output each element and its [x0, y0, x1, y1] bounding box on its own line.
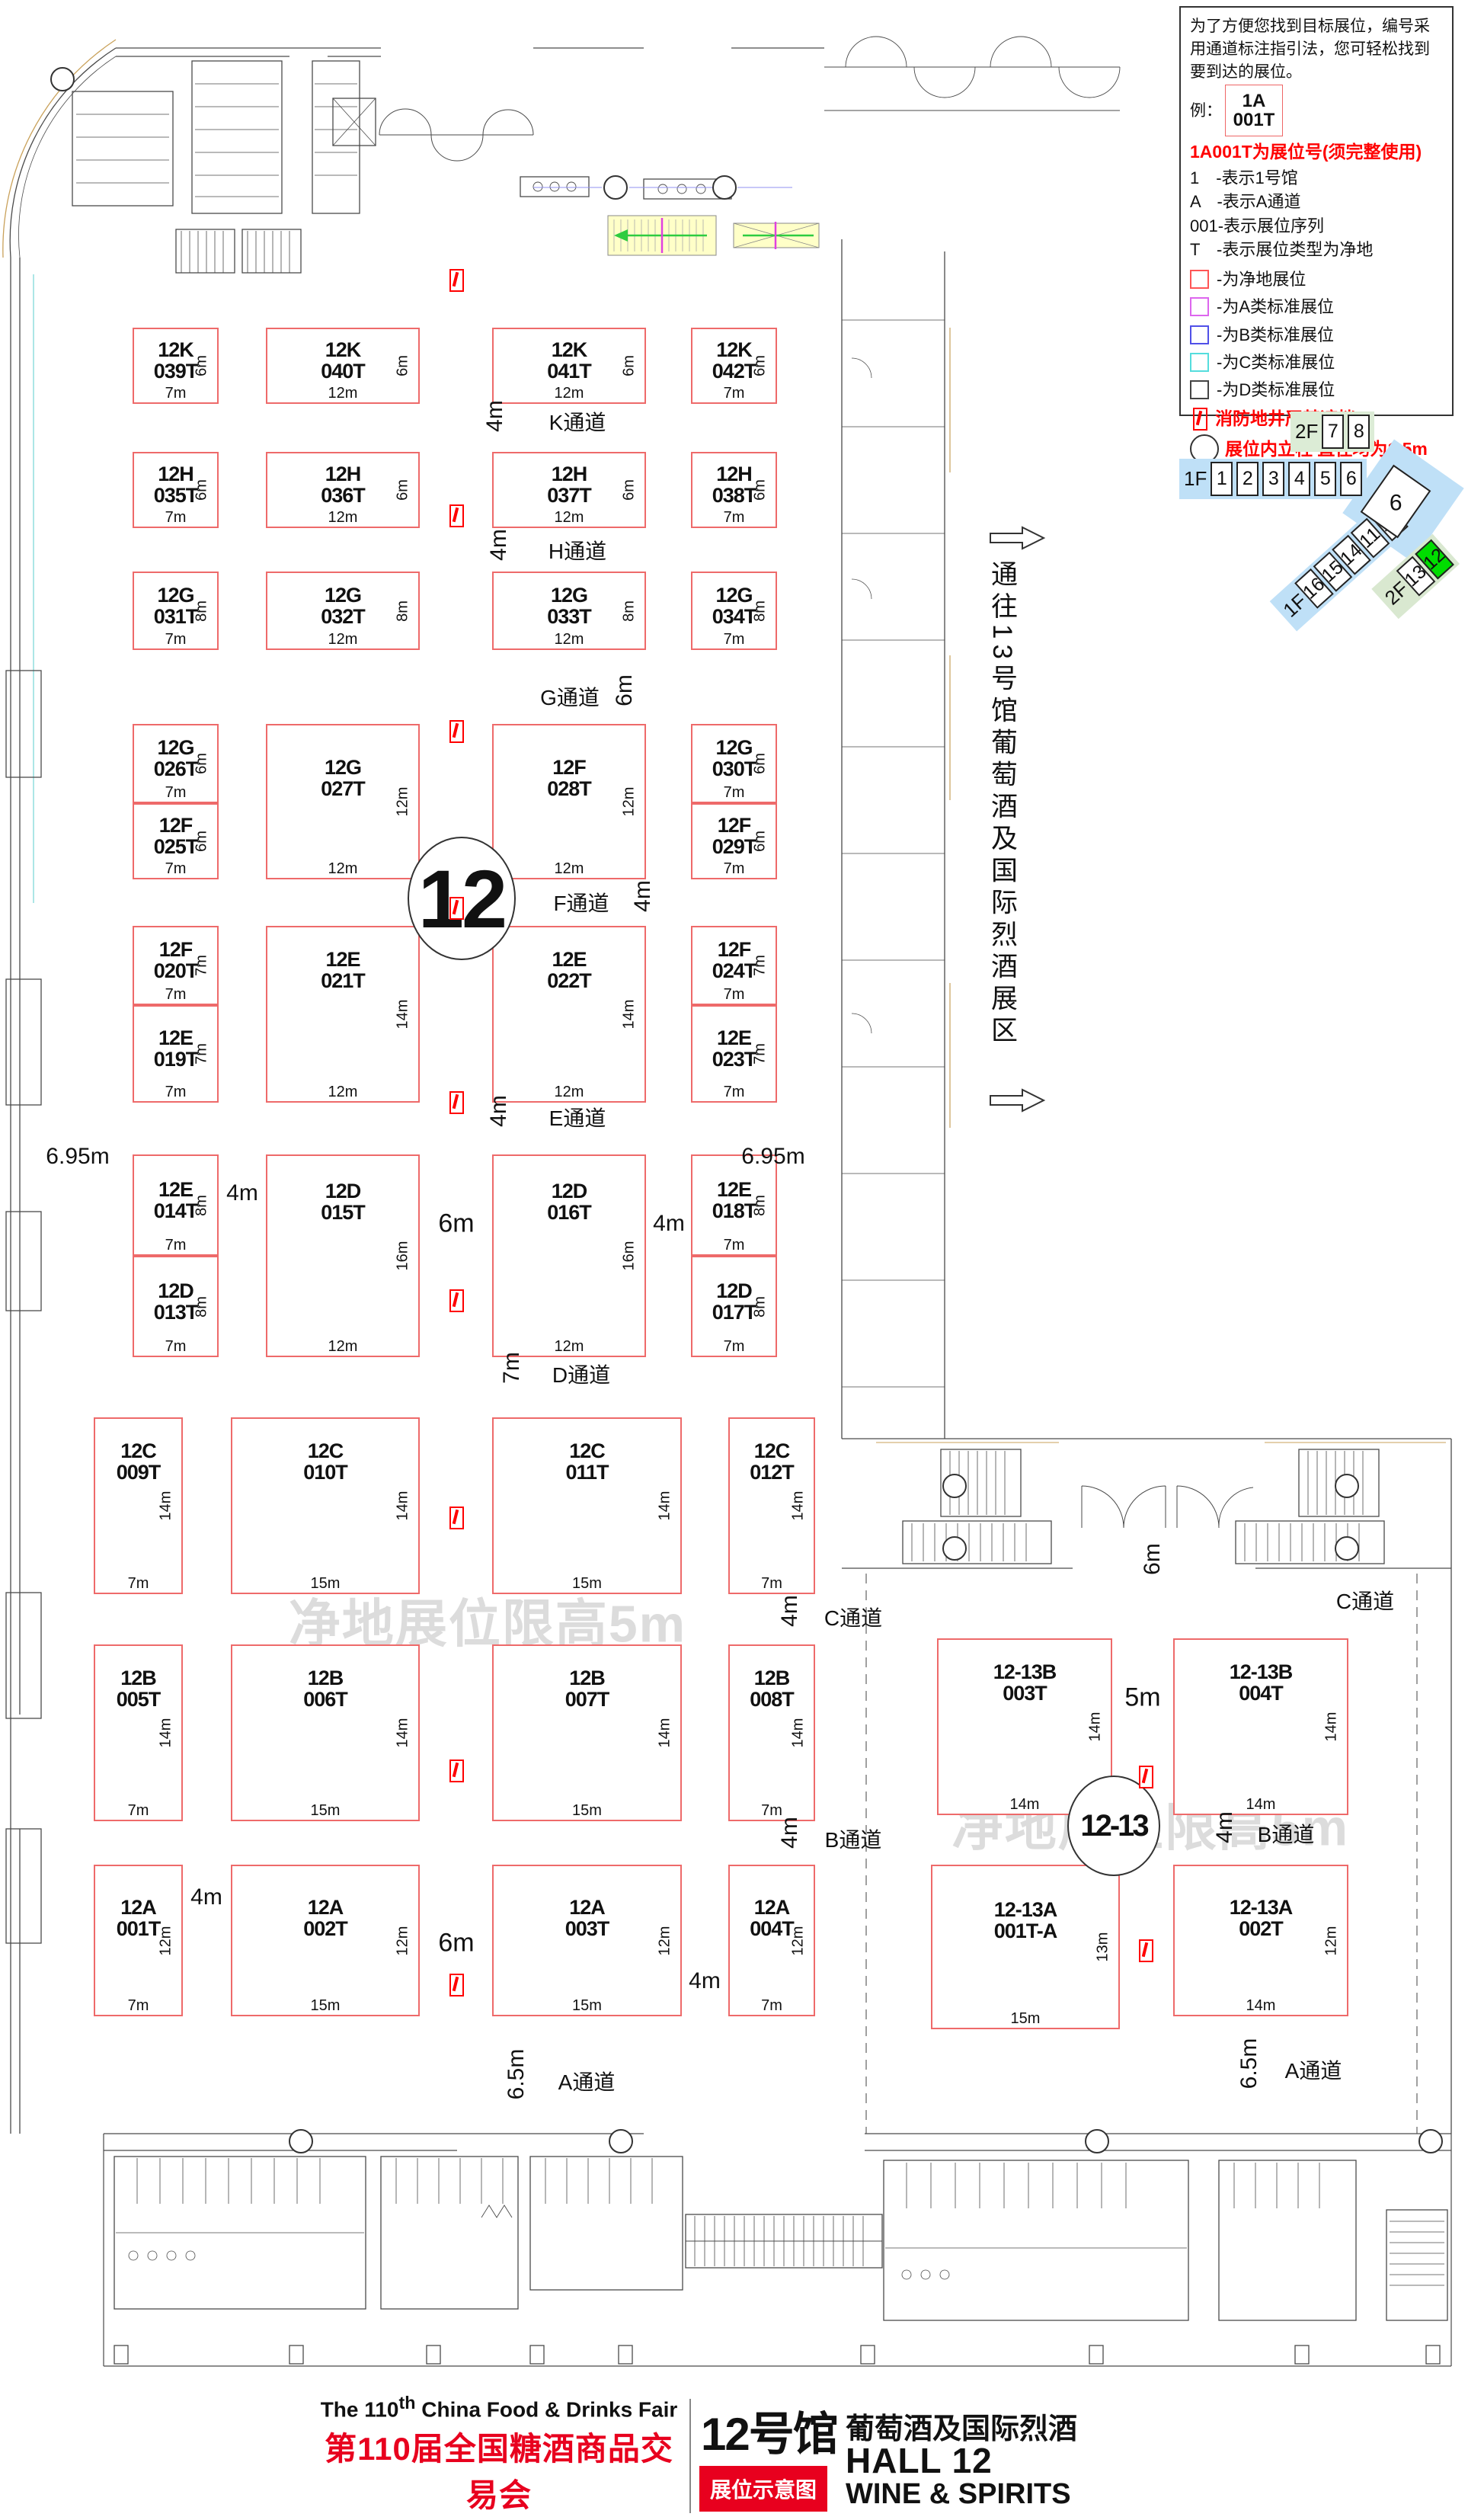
booth-type-swatch: [1190, 380, 1209, 399]
booth-12C-010T: 12C010T15m14m: [231, 1417, 420, 1594]
minimap-hall-1: 1: [1211, 462, 1233, 496]
booth-12G-034T: 12G034T7m8m: [691, 572, 777, 650]
booth-depth-label: 6m: [193, 467, 211, 513]
booth-width-label: 7m: [134, 986, 217, 1004]
example-booth-line2: 001T: [1233, 110, 1275, 130]
booth-depth-label: 12m: [1323, 1918, 1341, 1964]
booth-depth-label: 12m: [621, 779, 638, 825]
dimension-label: 6.95m: [741, 1144, 804, 1170]
booth-width-label: 15m: [232, 1575, 418, 1593]
pillar-icon: [603, 175, 628, 200]
booth-id: 12D015T: [267, 1180, 418, 1223]
booth-depth-label: 14m: [790, 1710, 808, 1756]
fair-title-en: The 110th China Food & Drinks Fair: [320, 2393, 678, 2422]
minimap-floor1-label: 1F: [1184, 467, 1207, 491]
booth-type-swatch: [1190, 353, 1209, 372]
booth-depth-label: 6m: [193, 343, 211, 389]
booth-type-swatch: [1190, 325, 1209, 344]
aisle-label: A通道: [558, 2066, 616, 2096]
booth-12-13A-002T: 12-13A002T14m12m: [1173, 1865, 1348, 2016]
minimap-hall-2: 2: [1236, 462, 1259, 496]
minimap-floor1: 1F 123456: [1179, 459, 1367, 499]
dimension-label: 6m: [1140, 1543, 1166, 1575]
booth-width-label: 7m: [730, 1575, 814, 1593]
booth-depth-label: 8m: [193, 1183, 211, 1228]
booth-depth-label: 16m: [395, 1233, 412, 1279]
aisle-label: B通道: [1258, 1818, 1315, 1849]
booth-12F-029T: 12F029T7m6m: [691, 803, 777, 879]
dimension-label: 6.95m: [46, 1144, 109, 1170]
booth-12A-002T: 12A002T15m12m: [231, 1865, 420, 2016]
dimension-label: 4m: [630, 880, 656, 912]
dimension-label: 4m: [226, 1180, 258, 1206]
legend-panel: 为了方便您找到目标展位，编号采用通道标注指引法，您可轻松找到要到达的展位。 例：…: [1179, 6, 1454, 416]
minimap-hall-3: 3: [1262, 462, 1284, 496]
dimension-label: 5m: [1124, 1683, 1160, 1713]
booth-depth-label: 7m: [752, 943, 769, 988]
fire-well-icon: [449, 1974, 464, 1996]
pillar-icon: [609, 2129, 633, 2153]
booth-depth-label: 6m: [193, 741, 211, 786]
booth-depth-label: 7m: [193, 1031, 211, 1077]
booth-id: 12D016T: [494, 1180, 644, 1223]
pillar-icon: [1085, 2129, 1109, 2153]
booth-depth-label: 14m: [395, 991, 412, 1037]
plan-type-badge: 展位示意图: [699, 2466, 827, 2512]
minimap-hall-7: 7: [1322, 415, 1344, 449]
escalators: [608, 216, 819, 255]
booth-depth-label: 12m: [158, 1918, 175, 1964]
booth-width-label: 7m: [692, 1084, 776, 1101]
booth-type-label: -为C类标准展位: [1217, 351, 1335, 374]
booth-12E-014T: 12E014T7m8m: [133, 1154, 219, 1256]
booth-width-label: 12m: [267, 860, 418, 878]
booth-type-swatch: [1190, 297, 1209, 316]
fire-well-icon: [1139, 1766, 1153, 1788]
booth-width-label: 12m: [267, 1084, 418, 1101]
aisle-label: E通道: [549, 1102, 606, 1132]
booth-depth-label: 12m: [790, 1918, 808, 1964]
booth-depth-label: 8m: [193, 1284, 211, 1330]
booth-depth-label: 14m: [657, 1710, 674, 1756]
booth-width-label: 7m: [134, 1338, 217, 1356]
booth-id: 12-13A002T: [1175, 1897, 1347, 1939]
booth-width-label: 15m: [494, 1997, 680, 2015]
booth-width-label: 15m: [494, 1802, 680, 1820]
legend-definitions: 1 -表示1号馆A -表示A通道001-表示展位序列T -表示展位类型为净地: [1190, 166, 1443, 261]
aisle-label: C通道: [824, 1602, 882, 1632]
minimap-hall-5: 5: [1314, 462, 1336, 496]
booth-depth-label: 6m: [752, 343, 769, 389]
minimap-floor2: 2F 78: [1290, 411, 1374, 452]
booth-id: 12A002T: [232, 1897, 418, 1939]
dimension-label: 4m: [190, 1884, 222, 1910]
booth-width-label: 7m: [692, 784, 776, 802]
booth-12E-019T: 12E019T7m7m: [133, 1005, 219, 1103]
booth-depth-label: 12m: [657, 1918, 674, 1964]
booth-12K-039T: 12K039T7m6m: [133, 328, 219, 404]
legend-booth-types: -为净地展位-为A类标准展位-为B类标准展位-为C类标准展位-为D类标准展位: [1190, 267, 1443, 402]
booth-12K-041T: 12K041T12m6m: [492, 328, 646, 404]
arrow-right-icon: [989, 1088, 1047, 1113]
booth-width-label: 7m: [730, 1997, 814, 2015]
hall-number-cn: 12号馆: [701, 2397, 837, 2464]
pillar-icon: [289, 2129, 313, 2153]
booth-12F-025T: 12F025T7m6m: [133, 803, 219, 879]
dimension-label: 4m: [1212, 1811, 1238, 1843]
booth-id: 12B005T: [95, 1667, 181, 1710]
booth-depth-label: 6m: [752, 741, 769, 786]
dimension-label: 4m: [486, 1095, 512, 1127]
booth-depth-label: 7m: [752, 1031, 769, 1077]
booth-12B-006T: 12B006T15m14m: [231, 1644, 420, 1821]
booth-depth-label: 12m: [395, 1918, 412, 1964]
legend-intro: 为了方便您找到目标展位，编号采用通道标注指引法，您可轻松找到要到达的展位。: [1190, 15, 1443, 83]
booth-width-label: 14m: [1175, 1796, 1347, 1814]
booth-width-label: 7m: [134, 784, 217, 802]
booth-12D-016T: 12D016T12m16m: [492, 1154, 646, 1357]
booth-12C-009T: 12C009T7m14m: [94, 1417, 183, 1594]
fire-well-icon: [449, 504, 464, 527]
legend-example-label: 例：: [1190, 100, 1222, 123]
dimension-label: 4m: [777, 1817, 803, 1849]
wayfinding-note: 通往13号馆葡萄酒及国际烈酒展区: [983, 560, 1022, 1049]
booth-12-13A-001T-A: 12-13A001T-A15m13m: [931, 1865, 1120, 2029]
aisle-label: C通道: [1336, 1585, 1394, 1615]
dimension-label: 4m: [689, 1968, 721, 1994]
booth-width-label: 15m: [232, 1997, 418, 2015]
booth-depth-label: 6m: [752, 818, 769, 864]
booth-12D-015T: 12D015T12m16m: [266, 1154, 420, 1357]
booth-type-swatch: [1190, 270, 1209, 289]
title-divider: [689, 2399, 691, 2513]
dimension-label: 6m: [612, 674, 638, 706]
booth-depth-label: 7m: [193, 943, 211, 988]
booth-12C-012T: 12C012T7m14m: [728, 1417, 815, 1594]
title-block: The 110th China Food & Drinks Fair 第110届…: [320, 2393, 1158, 2518]
booth-depth-label: 6m: [395, 343, 412, 389]
booth-depth-label: 8m: [752, 1183, 769, 1228]
minimap-hall-6: 6: [1340, 462, 1362, 496]
booth-width-label: 7m: [692, 1338, 776, 1356]
booth-id: 12C010T: [232, 1440, 418, 1483]
booth-type-label: -为B类标准展位: [1217, 323, 1334, 347]
dimension-label: 4m: [777, 1595, 803, 1627]
booth-id: 12C011T: [494, 1440, 680, 1483]
booth-width-label: 15m: [494, 1575, 680, 1593]
booth-12G-026T: 12G026T7m6m: [133, 724, 219, 803]
booth-width-label: 14m: [1175, 1997, 1347, 2015]
booth-depth-label: 14m: [790, 1483, 808, 1529]
booth-12H-036T: 12H036T12m6m: [266, 452, 420, 528]
legend-definition: T -表示展位类型为净地: [1190, 238, 1443, 261]
legend-type-row: -为D类标准展位: [1190, 378, 1443, 402]
booth-12G-030T: 12G030T7m6m: [691, 724, 777, 803]
booth-depth-label: 6m: [193, 818, 211, 864]
booth-id: 12A003T: [494, 1897, 680, 1939]
hall-number-en: HALL 12: [846, 2440, 993, 2481]
booth-12F-028T: 12F028T12m12m: [492, 724, 646, 879]
booth-12E-023T: 12E023T7m7m: [691, 1005, 777, 1103]
booth-depth-label: 14m: [158, 1483, 175, 1529]
fire-well-icon: [449, 1289, 464, 1312]
floor-plan: 净地展位限高5m净地展位限高5m12K039T7m6m12K040T12m6m1…: [0, 0, 1468, 2520]
dimension-label: 4m: [486, 529, 512, 561]
aisle-label: F通道: [553, 887, 609, 917]
booth-width-label: 12m: [494, 1084, 644, 1101]
booth-width-label: 7m: [95, 1802, 181, 1820]
booth-12G-031T: 12G031T7m8m: [133, 572, 219, 650]
booth-12F-024T: 12F024T7m7m: [691, 926, 777, 1005]
booth-depth-label: 8m: [193, 588, 211, 634]
aisle-label: H通道: [549, 535, 606, 565]
legend-booth-no-note: 1A001T为展位号(须完整使用): [1190, 139, 1443, 165]
pillar-icon: [1335, 1474, 1359, 1498]
booth-id: 12E021T: [267, 949, 418, 991]
aisle-label: G通道: [540, 681, 600, 712]
booth-id: 12C012T: [730, 1440, 814, 1483]
booth-id: 12B007T: [494, 1667, 680, 1710]
fire-well-icon: [449, 720, 464, 743]
legend-type-row: -为B类标准展位: [1190, 323, 1443, 347]
booth-12H-035T: 12H035T7m6m: [133, 452, 219, 528]
fire-well-icon: [1139, 1939, 1153, 1962]
pillar-icon: [942, 1474, 967, 1498]
aisle-label: B通道: [825, 1824, 882, 1854]
booth-12K-040T: 12K040T12m6m: [266, 328, 420, 404]
booth-12G-027T: 12G027T12m12m: [266, 724, 420, 879]
booth-12B-005T: 12B005T7m14m: [94, 1644, 183, 1821]
aisle-label: A通道: [1285, 2054, 1342, 2085]
fire-well-icon: [449, 269, 464, 292]
dimension-label: 6m: [438, 1209, 474, 1239]
booth-12H-037T: 12H037T12m6m: [492, 452, 646, 528]
arrow-right-icon: [989, 526, 1047, 550]
booth-12E-022T: 12E022T12m14m: [492, 926, 646, 1103]
booth-width-label: 7m: [692, 986, 776, 1004]
booth-id: 12E022T: [494, 949, 644, 991]
aisle-label: K通道: [549, 406, 606, 437]
dimension-label: 4m: [653, 1211, 685, 1237]
booth-12A-003T: 12A003T15m12m: [492, 1865, 682, 2016]
pillar-icon: [712, 175, 737, 200]
dimension-label: 6.5m: [1236, 2038, 1262, 2089]
pillar-icon: [50, 67, 75, 91]
booth-depth-label: 6m: [621, 343, 638, 389]
booth-12D-013T: 12D013T7m8m: [133, 1256, 219, 1357]
booth-depth-label: 14m: [158, 1710, 175, 1756]
legend-type-row: -为C类标准展位: [1190, 351, 1443, 374]
booth-depth-label: 8m: [752, 1284, 769, 1330]
booth-depth-label: 14m: [395, 1483, 412, 1529]
legend-type-row: -为A类标准展位: [1190, 295, 1443, 319]
booth-id: 12B008T: [730, 1667, 814, 1710]
legend-definition: 1 -表示1号馆: [1190, 166, 1443, 190]
booth-width-label: 12m: [267, 1338, 418, 1356]
booth-width-label: 7m: [692, 1237, 776, 1254]
pillar-icon: [1335, 1536, 1359, 1561]
booth-depth-label: 6m: [621, 467, 638, 513]
booth-width-label: 15m: [932, 2010, 1118, 2028]
fair-title-cn: 第110届全国糖酒商品交易会: [320, 2423, 678, 2516]
booth-width-label: 7m: [134, 1084, 217, 1101]
pillar-icon: [1418, 2129, 1443, 2153]
legend-type-row: -为净地展位: [1190, 267, 1443, 291]
booth-depth-label: 6m: [752, 467, 769, 513]
booth-depth-label: 8m: [395, 588, 412, 634]
booth-width-label: 7m: [95, 1997, 181, 2015]
booth-width-label: 7m: [95, 1575, 181, 1593]
dimension-label: 6m: [438, 1929, 474, 1958]
booth-12B-007T: 12B007T15m14m: [492, 1644, 682, 1821]
booth-12H-038T: 12H038T7m6m: [691, 452, 777, 528]
booth-12F-020T: 12F020T7m7m: [133, 926, 219, 1005]
booth-depth-label: 14m: [657, 1483, 674, 1529]
booth-id: 12-13B004T: [1175, 1661, 1347, 1704]
booth-depth-label: 14m: [621, 991, 638, 1037]
booth-12-13B-004T: 12-13B004T14m14m: [1173, 1638, 1348, 1815]
fire-well-icon: [449, 1091, 464, 1114]
booth-width-label: 7m: [134, 1237, 217, 1254]
booth-12A-001T: 12A001T7m12m: [94, 1865, 183, 2016]
fire-well-icon: [449, 1760, 464, 1782]
booth-12D-017T: 12D017T7m8m: [691, 1256, 777, 1357]
dimension-label: 4m: [482, 400, 508, 432]
booth-id: 12-13A001T-A: [932, 1899, 1118, 1942]
legend-definition: 001-表示展位序列: [1190, 214, 1443, 238]
aisle-label: D通道: [552, 1359, 610, 1389]
example-booth-line1: 1A: [1243, 91, 1266, 110]
minimap-hall-4: 4: [1288, 462, 1310, 496]
hall-category-en: WINE & SPIRITS: [846, 2478, 1071, 2511]
booth-12G-033T: 12G033T12m8m: [492, 572, 646, 650]
booth-id: 12-13B003T: [939, 1661, 1111, 1704]
booth-id: 12C009T: [95, 1440, 181, 1483]
booth-depth-label: 8m: [621, 588, 638, 634]
booth-width-label: 15m: [232, 1802, 418, 1820]
booth-12K-042T: 12K042T7m6m: [691, 328, 777, 404]
minimap-hall-8: 8: [1348, 415, 1370, 449]
fire-well-icon: [449, 1507, 464, 1529]
pillar-icon: [942, 1536, 967, 1561]
booth-type-label: -为A类标准展位: [1217, 295, 1334, 319]
hall-marker-12-13: 12-13: [1067, 1776, 1160, 1876]
booth-id: 12B006T: [232, 1667, 418, 1710]
booth-12E-021T: 12E021T12m14m: [266, 926, 420, 1103]
dimension-label: 7m: [499, 1352, 525, 1384]
minimap-floor2-label: 2F: [1295, 420, 1318, 443]
booth-depth-label: 14m: [1323, 1704, 1341, 1750]
booth-depth-label: 6m: [395, 467, 412, 513]
booth-depth-label: 14m: [395, 1710, 412, 1756]
legend-definition: A -表示A通道: [1190, 190, 1443, 213]
fire-well-icon: [1193, 408, 1207, 431]
booth-depth-label: 8m: [752, 588, 769, 634]
booth-12G-032T: 12G032T12m8m: [266, 572, 420, 650]
booth-depth-label: 16m: [621, 1233, 638, 1279]
booth-12A-004T: 12A004T7m12m: [728, 1865, 815, 2016]
booth-depth-label: 13m: [1095, 1924, 1112, 1970]
booth-width-label: 12m: [494, 860, 644, 878]
legend-example-booth: 1A 001T: [1225, 85, 1283, 136]
dimension-label: 6.5m: [504, 2049, 529, 2100]
booth-type-label: -为D类标准展位: [1217, 378, 1335, 402]
booth-12B-008T: 12B008T7m14m: [728, 1644, 815, 1821]
booth-depth-label: 14m: [1087, 1704, 1105, 1750]
booth-12C-011T: 12C011T15m14m: [492, 1417, 682, 1594]
booth-depth-label: 12m: [395, 779, 412, 825]
booth-type-label: -为净地展位: [1217, 267, 1306, 291]
fire-well-icon: [449, 897, 464, 920]
